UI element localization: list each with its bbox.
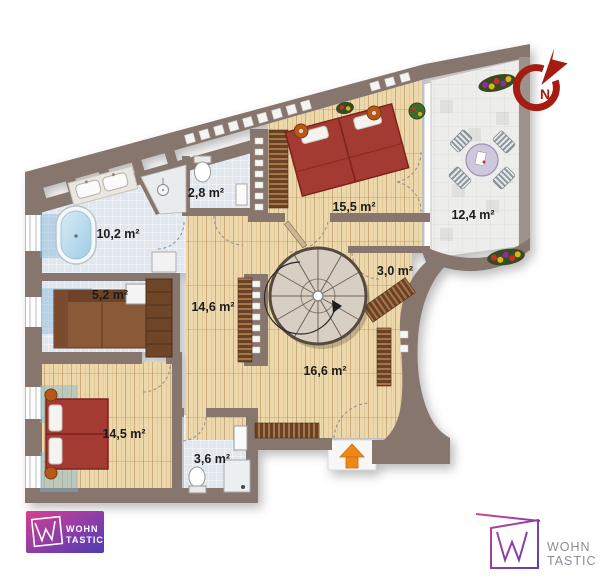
radiator-hall bbox=[238, 278, 252, 362]
wall-living-bottom bbox=[246, 438, 332, 450]
wall-storage-right bbox=[172, 281, 180, 360]
wall-bedroom-large-south-b bbox=[330, 213, 430, 222]
radiator-bedroom-large bbox=[269, 130, 288, 208]
room-label-bedroom-large: 15,5 m² bbox=[332, 200, 375, 214]
terrace-table bbox=[466, 144, 498, 176]
bath-small-toilet bbox=[189, 467, 206, 493]
double-bed-small bbox=[46, 399, 108, 469]
room-label-storage: 5,2 m² bbox=[92, 288, 128, 302]
wall-storage-bottom bbox=[30, 352, 142, 364]
room-label-bedroom-small: 14,5 m² bbox=[102, 427, 145, 441]
north-label: N bbox=[540, 86, 550, 102]
logo-right-monogram-icon bbox=[476, 514, 540, 568]
storage-appliance bbox=[126, 284, 146, 304]
wall-bath-small-top-b bbox=[206, 408, 252, 417]
plant-flower bbox=[418, 112, 422, 116]
plant-flower bbox=[412, 107, 416, 111]
nightstand bbox=[45, 467, 57, 479]
logo-right: WOHN TASTIC bbox=[476, 514, 597, 568]
plant bbox=[409, 103, 425, 119]
room-label-closet: 3,0 m² bbox=[377, 264, 413, 278]
wc-toilet bbox=[194, 156, 211, 182]
wall-bedroom-small-right bbox=[172, 364, 182, 503]
logo-left: WOHN TASTIC bbox=[26, 511, 104, 553]
room-label-living-room: 16,6 m² bbox=[303, 364, 346, 378]
stair-center-post bbox=[313, 291, 323, 301]
wall-bath-small-top-a bbox=[174, 408, 184, 417]
wc-sink bbox=[236, 184, 247, 205]
hall-wardrobe bbox=[146, 279, 172, 357]
room-label-hallway: 14,6 m² bbox=[191, 300, 234, 314]
room-label-bathroom-large: 10,2 m² bbox=[96, 227, 139, 241]
bath-small-sink bbox=[234, 426, 247, 450]
terrace-right-wall bbox=[519, 57, 530, 250]
floorplan-svg: 10,2 m² 2,8 m² 5,2 m² 14,6 m² 15,5 m² 12… bbox=[0, 0, 601, 576]
nightstand bbox=[45, 389, 57, 401]
bathtub bbox=[56, 206, 96, 264]
room-label-bathroom-small: 3,6 m² bbox=[194, 452, 230, 466]
floorplan-image: 10,2 m² 2,8 m² 5,2 m² 14,6 m² 15,5 m² 12… bbox=[0, 0, 601, 576]
radiator-living-bottom bbox=[255, 423, 319, 438]
logo-right-line1: WOHN bbox=[547, 540, 591, 554]
logo-left-line1: WOHN bbox=[66, 524, 99, 534]
wall-closet bbox=[348, 246, 430, 253]
room-label-wc: 2,8 m² bbox=[188, 186, 224, 200]
apartment-plan: 10,2 m² 2,8 m² 5,2 m² 14,6 m² 15,5 m² 12… bbox=[25, 44, 530, 503]
wall-wc-bottom bbox=[182, 208, 252, 216]
wall-bedroom-large-south-a bbox=[248, 213, 285, 222]
logo-right-line2: TASTIC bbox=[547, 554, 597, 568]
shower-drain bbox=[241, 485, 245, 489]
nightstand-detail bbox=[299, 129, 303, 133]
room-label-terrace: 12,4 m² bbox=[451, 208, 494, 222]
bath-cabinet bbox=[152, 252, 176, 272]
logo-left-line2: TASTIC bbox=[66, 535, 104, 545]
nightstand-detail bbox=[372, 111, 376, 115]
radiator-living-right bbox=[377, 328, 391, 386]
